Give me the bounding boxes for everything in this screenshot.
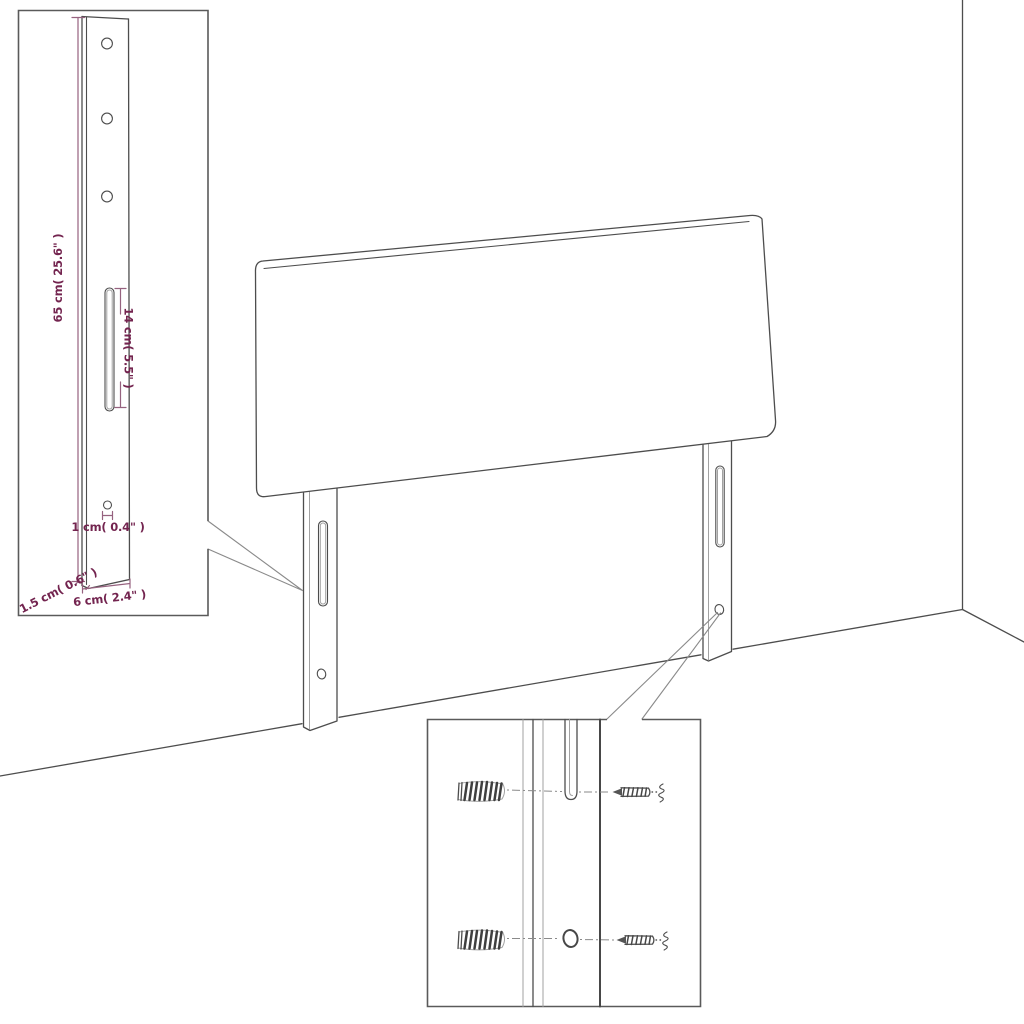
dimension-slot-length-label: 14 cm( 5.5" ): [122, 307, 136, 388]
leg-hole-2: [102, 113, 113, 124]
headboard-dimension-diagram: 65 cm( 25.6" ) 14 cm( 5.5" ) 1 cm( 0.4" …: [0, 0, 1024, 1024]
leg-closeup: [523, 720, 600, 1007]
wall-anchor-icon: [458, 930, 505, 950]
dimension-slot-length: 14 cm( 5.5" ): [115, 289, 136, 408]
leg-small-hole: [104, 501, 112, 509]
callout-lines-leg-detail: [208, 521, 303, 591]
floor-line-left: [0, 610, 963, 777]
leader-anchor-to-slot: [507, 790, 562, 792]
enlarged-leg-drawing: [82, 17, 130, 589]
detail-inset-mounting: [428, 720, 701, 1007]
closeup-hole: [562, 929, 579, 949]
inset-mounting-border: [428, 720, 701, 1007]
headboard-panel: [255, 215, 775, 496]
dimension-leg-depth-label: 1.5 cm( 0.6" ): [17, 565, 99, 616]
leg-hole-1: [102, 38, 113, 49]
detail-inset-leg: 65 cm( 25.6" ) 14 cm( 5.5" ) 1 cm( 0.4" …: [17, 11, 208, 617]
wall-anchor-icon: [458, 782, 505, 802]
fixing-hardware: [458, 782, 668, 950]
diagram-canvas: 65 cm( 25.6" ) 14 cm( 5.5" ) 1 cm( 0.4" …: [0, 0, 1024, 1024]
dimension-leg-depth: 1.5 cm( 0.6" ): [17, 565, 99, 616]
dimension-leg-width-label: 6 cm( 2.4" ): [72, 587, 146, 609]
left-leg: [304, 488, 338, 731]
right-leg: [703, 439, 732, 662]
dimension-leg-height: 65 cm( 25.6" ): [51, 18, 85, 582]
leader-hole-to-screw: [580, 940, 615, 941]
dimension-hole-diameter-label: 1 cm( 0.4" ): [71, 520, 144, 534]
closeup-slot: [565, 720, 577, 800]
dimension-leg-height-label: 65 cm( 25.6" ): [51, 234, 65, 323]
floor-line-right: [963, 610, 1024, 643]
screw-icon: [613, 784, 665, 802]
leg-hole-3: [102, 191, 113, 202]
screw-icon: [617, 932, 669, 950]
